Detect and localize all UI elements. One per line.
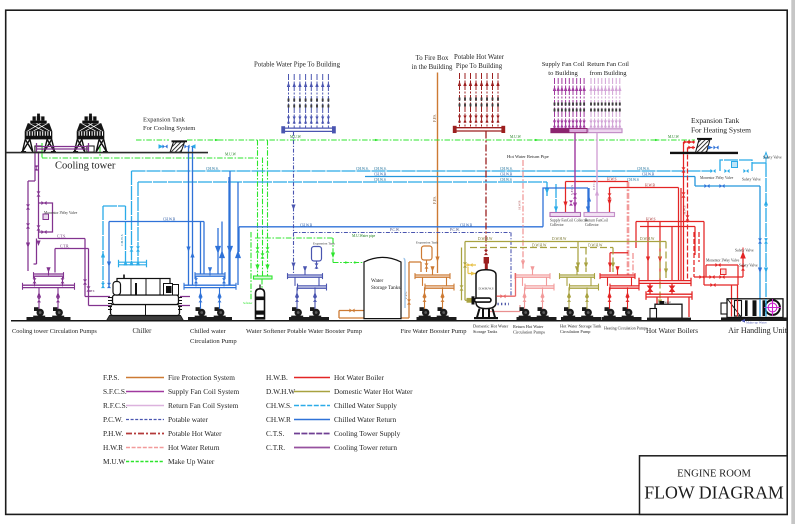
svg-text:BT.: BT.: [90, 289, 95, 293]
svg-text:Expansion Tank: Expansion Tank: [143, 117, 186, 124]
svg-text:CH.W.S.: CH.W.S.: [637, 167, 650, 171]
svg-text:from Building: from Building: [589, 70, 627, 77]
svg-text:Domestic Water Hot Water: Domestic Water Hot Water: [334, 387, 413, 396]
svg-text:H.W.R: H.W.R: [103, 443, 123, 452]
svg-text:Safety Valve: Safety Valve: [742, 178, 761, 182]
svg-text:Collector: Collector: [585, 223, 599, 227]
svg-text:D.W.H.W: D.W.H.W: [552, 237, 567, 241]
svg-text:Circulation Pump: Circulation Pump: [560, 329, 590, 334]
svg-text:Make Up Water: Make Up Water: [168, 457, 215, 466]
svg-text:Hot Water Storage Tank: Hot Water Storage Tank: [560, 324, 602, 329]
svg-text:Monentor 3Way Valve: Monentor 3Way Valve: [44, 211, 78, 215]
svg-text:CH.W.S: CH.W.S: [500, 178, 512, 182]
svg-text:Chilled Water Supply: Chilled Water Supply: [334, 401, 397, 410]
svg-text:H.W.S: H.W.S: [683, 205, 687, 214]
svg-text:F.P.S.: F.P.S.: [433, 114, 437, 122]
svg-text:C.T.S.: C.T.S.: [266, 429, 284, 438]
svg-text:M.U.W: M.U.W: [290, 135, 302, 139]
svg-text:R.F.C.S: R.F.C.S: [592, 180, 596, 191]
svg-text:D.W.H.W: D.W.H.W: [532, 243, 547, 247]
svg-text:Potable Water Pipe To Building: Potable Water Pipe To Building: [254, 62, 341, 69]
svg-text:M.U.W: M.U.W: [103, 457, 125, 466]
svg-text:in the Building: in the Building: [412, 64, 453, 71]
svg-text:R.F.C.S.: R.F.C.S.: [103, 401, 128, 410]
svg-text:To Fire Box: To Fire Box: [416, 55, 449, 62]
svg-text:Expansion Tank: Expansion Tank: [691, 116, 740, 125]
svg-text:Air Handling Unit: Air Handling Unit: [728, 326, 787, 335]
svg-text:Hot Water Return Pipe: Hot Water Return Pipe: [507, 154, 549, 159]
svg-text:Cooling Tower return: Cooling Tower return: [334, 443, 397, 452]
svg-text:CH.W.S: CH.W.S: [627, 178, 639, 182]
svg-text:Monentor 3Way Valve: Monentor 3Way Valve: [700, 176, 734, 180]
svg-text:Water Softener: Water Softener: [246, 328, 286, 335]
svg-text:F.P.S.: F.P.S.: [433, 196, 437, 204]
svg-text:CH.W.R: CH.W.R: [500, 172, 513, 176]
svg-text:CH.W.R: CH.W.R: [374, 172, 387, 176]
svg-text:M.U.W: M.U.W: [668, 135, 680, 139]
svg-text:CH.W.R: CH.W.R: [642, 172, 655, 176]
svg-text:Cooling tower: Cooling tower: [55, 161, 116, 172]
svg-text:Domestic Hot Water: Domestic Hot Water: [473, 324, 509, 329]
svg-text:Expansion Tank: Expansion Tank: [416, 241, 438, 245]
svg-text:Return Fan Coil System: Return Fan Coil System: [168, 401, 239, 410]
svg-text:CH.W.S.: CH.W.S.: [356, 167, 369, 171]
svg-text:Cooling Tower Supply: Cooling Tower Supply: [334, 429, 401, 438]
svg-text:D.W.H.W.S: D.W.H.W.S: [479, 287, 494, 291]
svg-text:D.W.H.W: D.W.H.W: [588, 243, 603, 247]
svg-text:CH.W.R: CH.W.R: [300, 224, 313, 228]
svg-text:FLOW DIAGRAM: FLOW DIAGRAM: [644, 483, 784, 503]
svg-text:Pipe To Building: Pipe To Building: [456, 63, 503, 70]
svg-text:Chiller: Chiller: [133, 328, 153, 335]
svg-text:H.W.R: H.W.R: [518, 200, 522, 210]
svg-text:D.W.H.W: D.W.H.W: [478, 237, 493, 241]
svg-text:Supply FanCoil Collector: Supply FanCoil Collector: [550, 219, 589, 223]
svg-text:Water: Water: [371, 278, 384, 284]
svg-text:Potable water: Potable water: [168, 415, 208, 424]
svg-text:CH.W.S: CH.W.S: [374, 178, 386, 182]
svg-text:Potable Hot Water: Potable Hot Water: [168, 429, 222, 438]
svg-text:ENGINE ROOM: ENGINE ROOM: [677, 469, 751, 480]
svg-text:C.T.R.: C.T.R.: [60, 244, 70, 248]
svg-text:Hot Water Boiler: Hot Water Boiler: [334, 373, 385, 382]
svg-text:Expansion Tank: Expansion Tank: [313, 242, 335, 246]
svg-text:Softener: Softener: [243, 302, 253, 305]
svg-text:For Heating System: For Heating System: [691, 126, 751, 135]
svg-text:Heating Circulation Pumps: Heating Circulation Pumps: [604, 326, 648, 331]
svg-text:CH.W.S: CH.W.S: [120, 234, 124, 245]
svg-text:P.C.W.: P.C.W.: [390, 228, 400, 232]
svg-text:Safety Valve: Safety Valve: [735, 249, 754, 253]
svg-text:S.F.C.S: S.F.C.S: [570, 185, 574, 195]
svg-text:Safety Valve: Safety Valve: [739, 264, 758, 268]
svg-text:CH.W.S.: CH.W.S.: [374, 167, 387, 171]
svg-text:Fire Water Booster Pump: Fire Water Booster Pump: [401, 328, 467, 335]
svg-text:H.W.S: H.W.S: [607, 178, 616, 182]
svg-text:CH.W.S.: CH.W.S.: [206, 167, 219, 171]
svg-text:CH.W.R: CH.W.R: [266, 415, 291, 424]
svg-text:H.W.B: H.W.B: [645, 183, 655, 187]
svg-text:M.U.Water pipe: M.U.Water pipe: [352, 234, 376, 238]
svg-text:Return Fan Coil: Return Fan Coil: [587, 61, 629, 68]
svg-text:D.W.H.W: D.W.H.W: [266, 387, 295, 396]
svg-text:to Building: to Building: [548, 70, 578, 77]
svg-text:Safety Valve: Safety Valve: [763, 156, 782, 160]
svg-text:Supply Fan Coil System: Supply Fan Coil System: [168, 387, 239, 396]
svg-text:S.F.C.S.: S.F.C.S.: [103, 387, 127, 396]
svg-text:CH.W.S.: CH.W.S.: [266, 401, 292, 410]
svg-text:Fire Protection System: Fire Protection System: [168, 373, 235, 382]
svg-text:H.W.B.: H.W.B.: [266, 373, 288, 382]
svg-text:Supply Fan Coil: Supply Fan Coil: [542, 61, 585, 68]
svg-text:F.P.S.: F.P.S.: [103, 373, 119, 382]
svg-text:Cooling tower Circulation Pump: Cooling tower Circulation Pumps: [12, 328, 97, 335]
svg-text:Chilled Water Return: Chilled Water Return: [334, 415, 396, 424]
svg-text:Potable Hot Water: Potable Hot Water: [454, 54, 505, 61]
svg-text:Collector: Collector: [550, 223, 564, 227]
svg-text:Return FanCoil: Return FanCoil: [585, 219, 608, 223]
svg-text:H.W.S: H.W.S: [646, 217, 655, 221]
svg-text:P.C.W.: P.C.W.: [450, 228, 460, 232]
svg-text:Hot Water Return: Hot Water Return: [168, 443, 220, 452]
svg-text:Monentor 3Way Valve: Monentor 3Way Valve: [706, 259, 740, 263]
svg-text:Return Hot Water: Return Hot Water: [513, 324, 544, 329]
svg-text:CH.W.R: CH.W.R: [460, 224, 473, 228]
svg-text:CH.W.R: CH.W.R: [163, 217, 176, 221]
svg-text:P.C.W.: P.C.W.: [103, 415, 123, 424]
svg-text:Make up Water: Make up Water: [746, 320, 768, 324]
svg-text:M.U.W: M.U.W: [225, 153, 237, 157]
svg-text:D.W.H.W: D.W.H.W: [640, 237, 655, 241]
svg-text:Hot Water Boilers: Hot Water Boilers: [646, 327, 698, 335]
svg-text:C.T.S.: C.T.S.: [57, 234, 66, 238]
svg-text:P.H.W.: P.H.W.: [103, 429, 123, 438]
svg-text:Potable Water Booster Pump: Potable Water Booster Pump: [287, 328, 362, 335]
svg-text:M.U.W: M.U.W: [510, 135, 522, 139]
svg-text:Storage Tanks: Storage Tanks: [473, 329, 498, 334]
svg-text:Circulation Pumps: Circulation Pumps: [513, 329, 545, 334]
svg-text:C.T.R.: C.T.R.: [266, 443, 285, 452]
svg-text:Storage Tanks: Storage Tanks: [371, 285, 400, 291]
svg-text:For Cooling System: For Cooling System: [143, 125, 195, 132]
svg-text:CH.W.S.: CH.W.S.: [500, 167, 513, 171]
svg-text:Circulation Pump: Circulation Pump: [190, 338, 237, 345]
svg-text:Chilled water: Chilled water: [190, 328, 227, 335]
